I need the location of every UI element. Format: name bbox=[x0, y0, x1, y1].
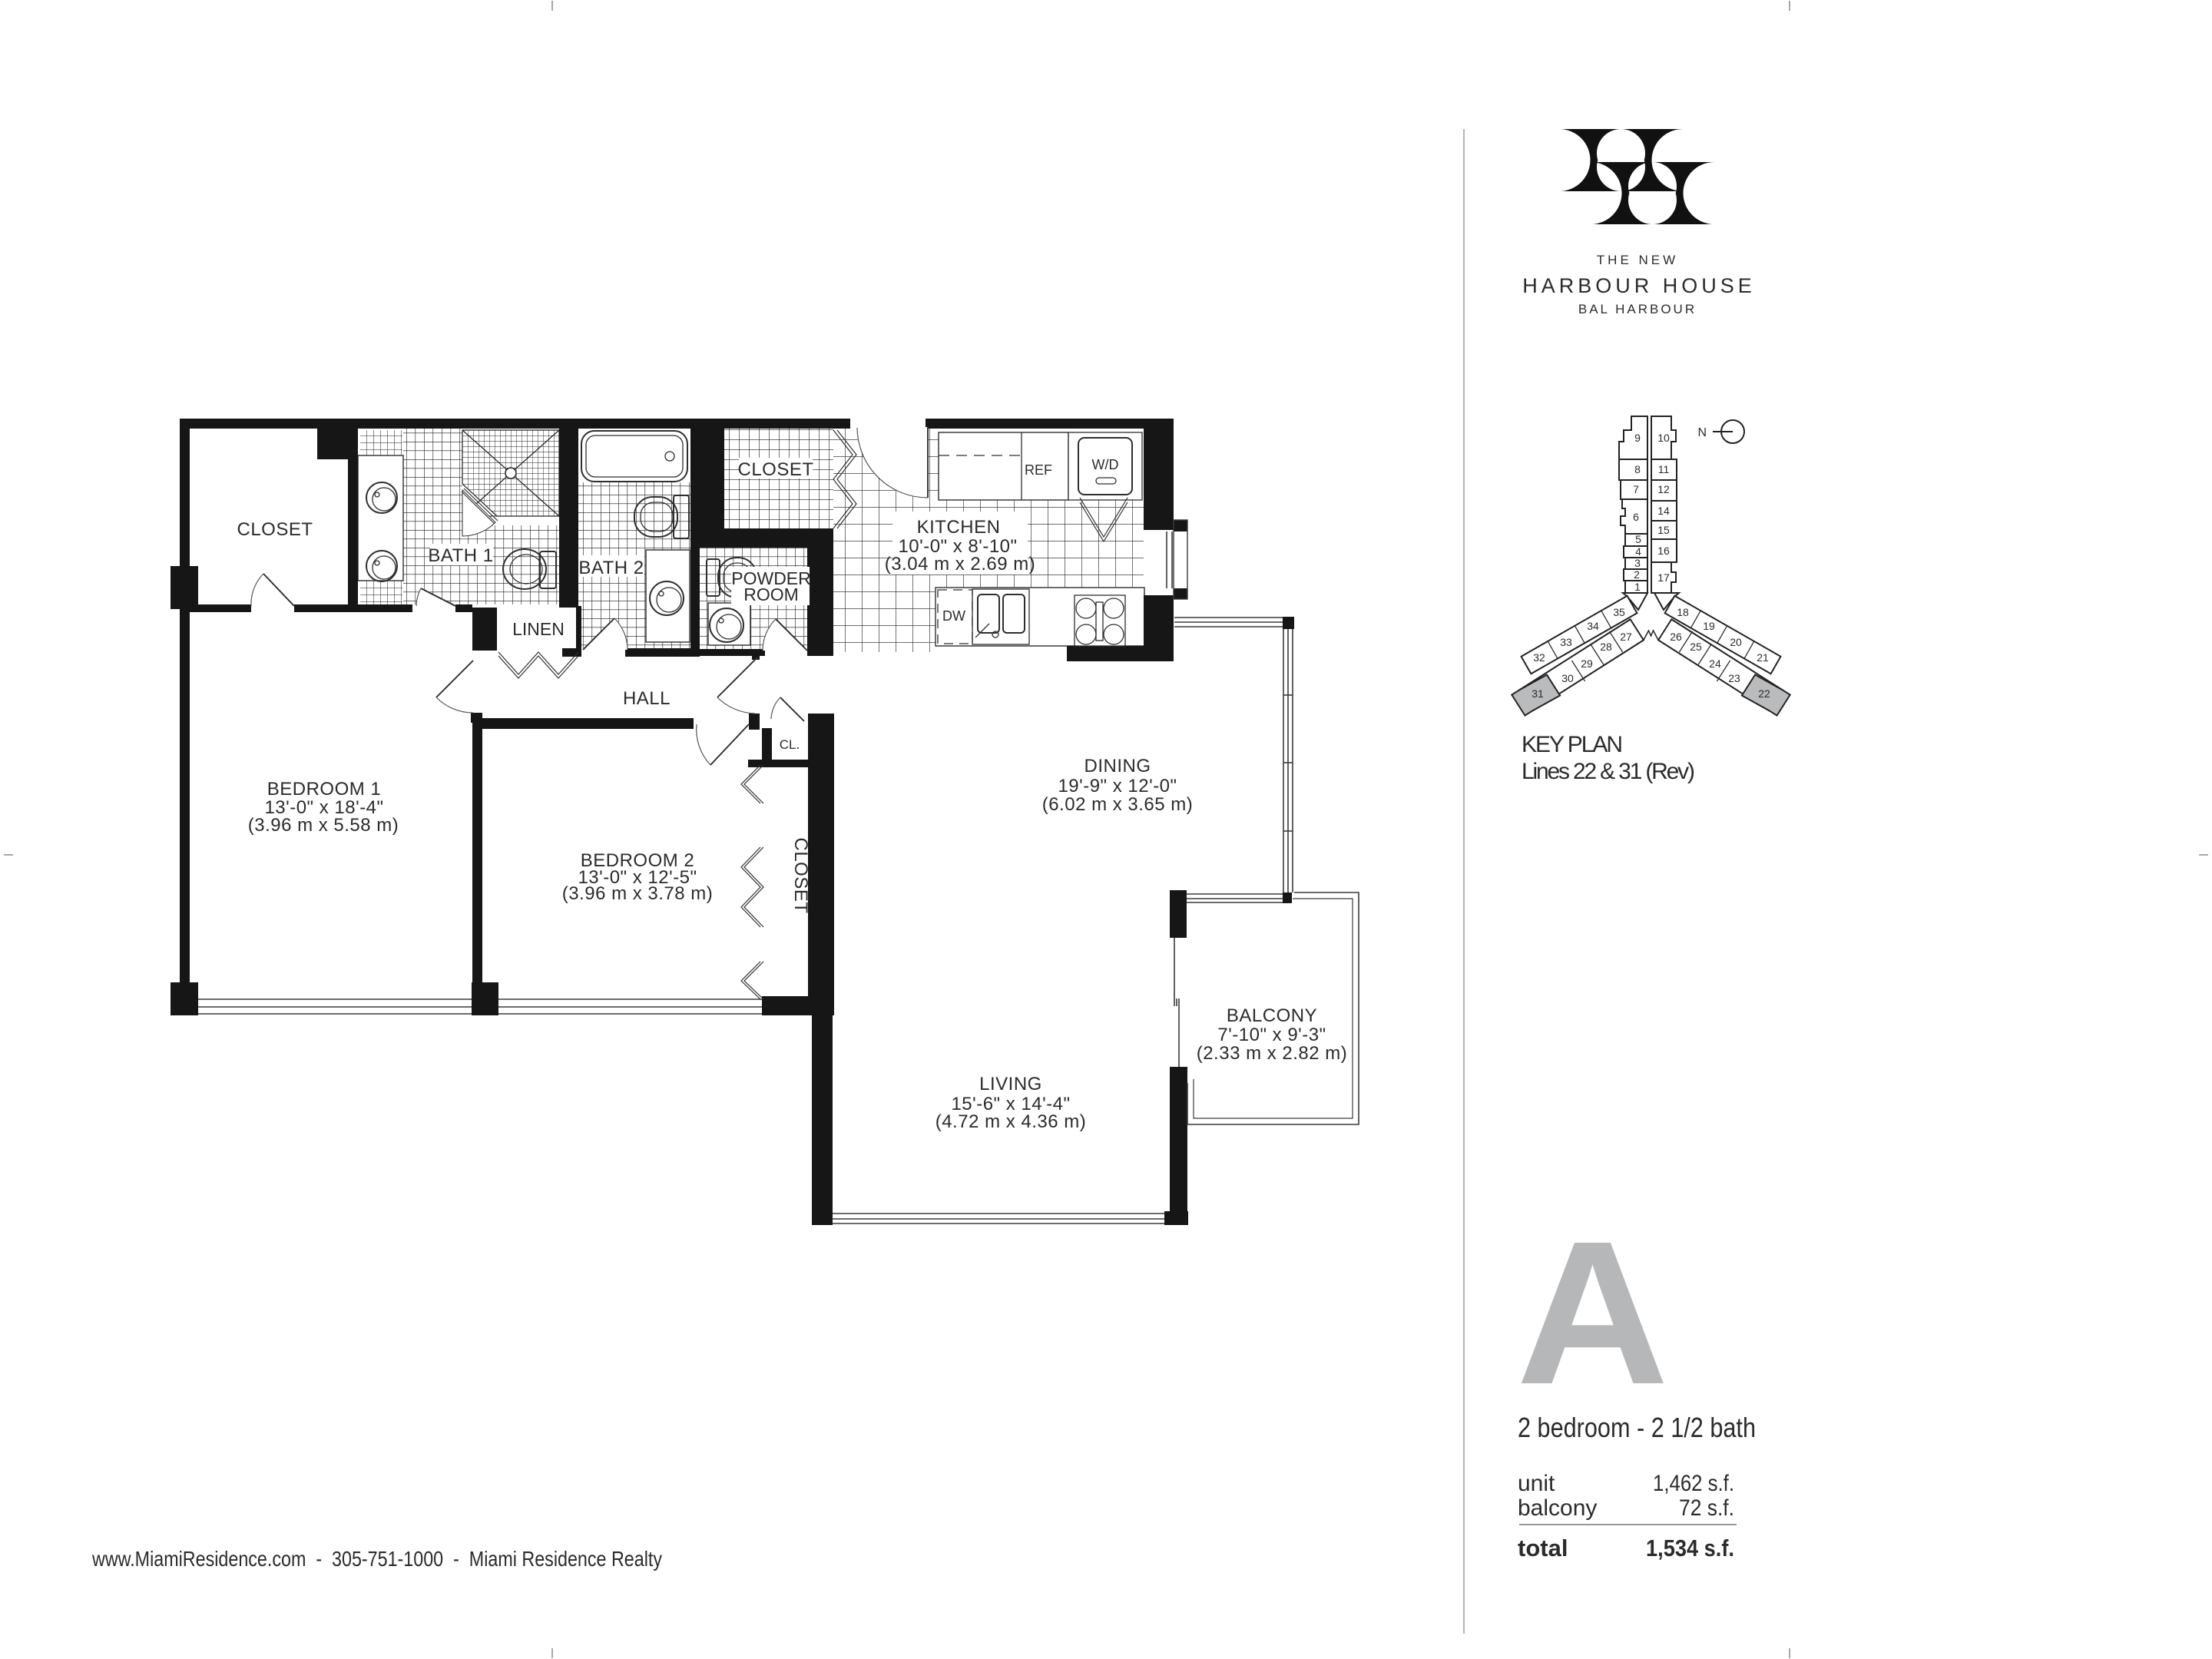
svg-text:(3.96 m x 5.58 m): (3.96 m x 5.58 m) bbox=[248, 815, 399, 836]
svg-text:KITCHEN: KITCHEN bbox=[917, 517, 1001, 538]
svg-text:21: 21 bbox=[1757, 651, 1769, 664]
svg-text:CLOSET: CLOSET bbox=[737, 459, 813, 480]
svg-text:W/D: W/D bbox=[1092, 457, 1119, 472]
svg-text:34: 34 bbox=[1587, 620, 1599, 632]
svg-text:22: 22 bbox=[1758, 687, 1770, 700]
svg-text:8: 8 bbox=[1634, 463, 1641, 475]
svg-text:17: 17 bbox=[1657, 571, 1670, 584]
svg-text:14: 14 bbox=[1657, 505, 1670, 517]
svg-text:24: 24 bbox=[1709, 657, 1721, 670]
svg-text:REF: REF bbox=[1025, 462, 1052, 478]
svg-text:26: 26 bbox=[1670, 631, 1682, 643]
svg-text:7'-10" x 9'-3": 7'-10" x 9'-3" bbox=[1217, 1025, 1326, 1045]
svg-text:28: 28 bbox=[1600, 641, 1612, 653]
svg-text:35: 35 bbox=[1613, 606, 1625, 618]
svg-text:19: 19 bbox=[1703, 620, 1715, 632]
svg-text:2: 2 bbox=[1634, 568, 1640, 581]
svg-text:3: 3 bbox=[1634, 557, 1641, 569]
svg-text:KEY PLAN: KEY PLAN bbox=[1522, 732, 1623, 757]
svg-text:4: 4 bbox=[1635, 545, 1641, 558]
svg-text:HARBOUR HOUSE: HARBOUR HOUSE bbox=[1522, 274, 1756, 297]
svg-text:CLOSET: CLOSET bbox=[237, 519, 313, 540]
svg-text:5: 5 bbox=[1635, 533, 1641, 545]
svg-text:THE NEW: THE NEW bbox=[1597, 253, 1678, 267]
svg-text:20: 20 bbox=[1730, 636, 1742, 648]
svg-text:32: 32 bbox=[1533, 651, 1545, 664]
svg-text:1,462 s.f.: 1,462 s.f. bbox=[1653, 1471, 1734, 1496]
svg-text:(3.04 m x 2.69 m): (3.04 m x 2.69 m) bbox=[885, 554, 1036, 575]
svg-text:19'-9" x 12'-0": 19'-9" x 12'-0" bbox=[1058, 776, 1177, 796]
svg-text:total: total bbox=[1518, 1535, 1568, 1561]
svg-text:HALL: HALL bbox=[623, 688, 671, 709]
svg-text:33: 33 bbox=[1560, 636, 1572, 648]
svg-text:18: 18 bbox=[1677, 606, 1689, 618]
svg-text:23: 23 bbox=[1728, 672, 1740, 684]
svg-text:LIVING: LIVING bbox=[979, 1074, 1042, 1094]
svg-text:N: N bbox=[1697, 426, 1707, 439]
svg-text:BEDROOM 1: BEDROOM 1 bbox=[267, 779, 382, 800]
svg-text:CL.: CL. bbox=[780, 737, 800, 752]
svg-text:ROOM: ROOM bbox=[743, 584, 799, 604]
svg-text:A: A bbox=[1516, 1199, 1669, 1427]
svg-text:29: 29 bbox=[1581, 657, 1593, 670]
svg-text:30: 30 bbox=[1561, 672, 1574, 684]
svg-text:(4.72 m x 4.36 m): (4.72 m x 4.36 m) bbox=[935, 1111, 1087, 1132]
svg-text:CLOSET: CLOSET bbox=[790, 837, 811, 913]
svg-text:11: 11 bbox=[1658, 463, 1670, 475]
svg-text:balcony: balcony bbox=[1518, 1495, 1597, 1521]
svg-text:DW: DW bbox=[942, 608, 965, 624]
svg-text:6: 6 bbox=[1633, 511, 1639, 523]
svg-text:unit: unit bbox=[1518, 1471, 1555, 1496]
svg-text:7: 7 bbox=[1633, 483, 1639, 495]
svg-text:2 bedroom - 2 1/2 bath: 2 bedroom - 2 1/2 bath bbox=[1518, 1412, 1756, 1443]
svg-text:9: 9 bbox=[1634, 432, 1641, 444]
svg-text:www.MiamiResidence.com - 305: www.MiamiResidence.com - 305-751-1000 - … bbox=[91, 1547, 662, 1571]
svg-text:LINEN: LINEN bbox=[512, 619, 565, 639]
svg-text:BALCONY: BALCONY bbox=[1227, 1005, 1317, 1026]
svg-text:(3.96 m x 3.78 m): (3.96 m x 3.78 m) bbox=[562, 883, 714, 904]
svg-text:Lines 22 & 31 (Rev): Lines 22 & 31 (Rev) bbox=[1522, 759, 1695, 784]
svg-text:12: 12 bbox=[1657, 483, 1670, 495]
svg-text:27: 27 bbox=[1620, 631, 1632, 643]
svg-text:BATH 1: BATH 1 bbox=[428, 545, 493, 566]
svg-text:BAL HARBOUR: BAL HARBOUR bbox=[1578, 302, 1697, 316]
svg-text:1: 1 bbox=[1634, 581, 1641, 593]
svg-text:1,534 s.f.: 1,534 s.f. bbox=[1646, 1535, 1734, 1561]
svg-text:10: 10 bbox=[1657, 432, 1670, 444]
svg-text:(6.02 m x 3.65 m): (6.02 m x 3.65 m) bbox=[1042, 794, 1194, 815]
svg-text:(2.33 m x 2.82 m): (2.33 m x 2.82 m) bbox=[1197, 1043, 1348, 1064]
svg-text:25: 25 bbox=[1690, 641, 1702, 653]
svg-text:72 s.f.: 72 s.f. bbox=[1679, 1495, 1734, 1521]
svg-text:15: 15 bbox=[1657, 524, 1670, 536]
svg-text:DINING: DINING bbox=[1084, 756, 1151, 777]
svg-text:BATH 2: BATH 2 bbox=[578, 558, 644, 578]
svg-text:31: 31 bbox=[1532, 687, 1544, 700]
svg-text:16: 16 bbox=[1657, 545, 1670, 557]
